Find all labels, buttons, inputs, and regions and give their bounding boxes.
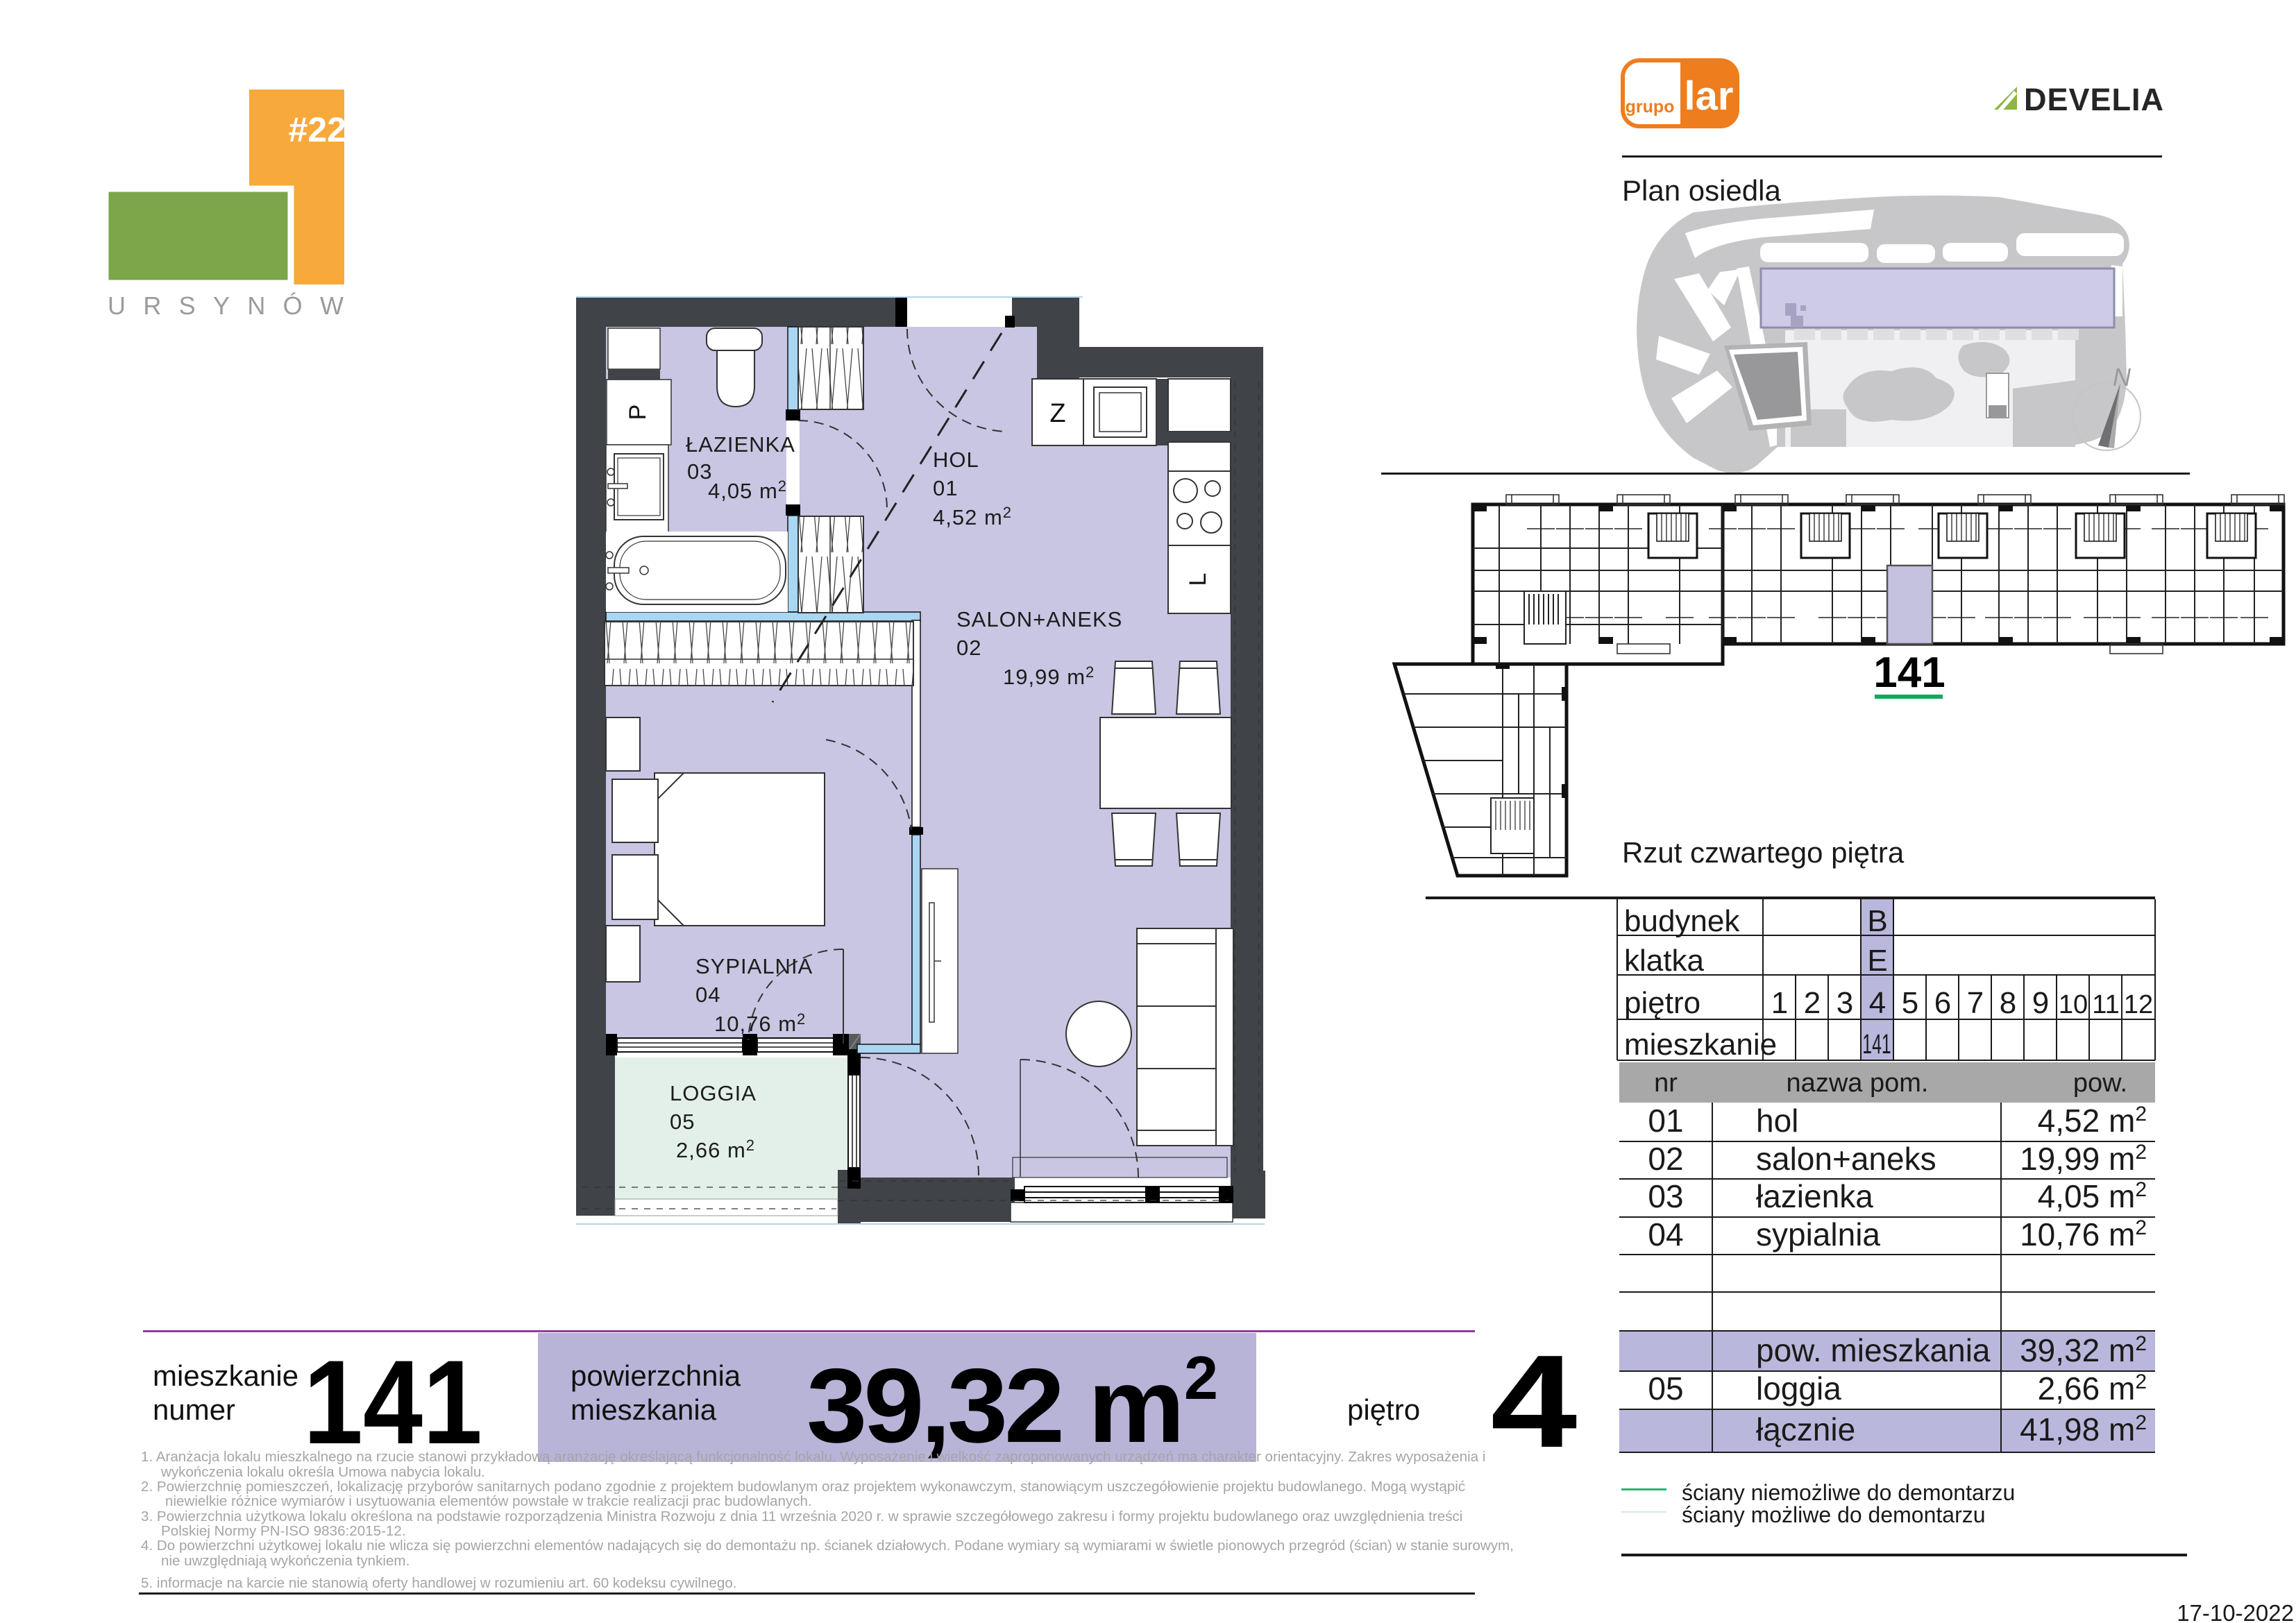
svg-text:budynek: budynek <box>1624 904 1740 938</box>
svg-text:19,99 m2: 19,99 m2 <box>2020 1141 2147 1177</box>
svg-text:łazienka: łazienka <box>1756 1178 1873 1214</box>
svg-text:SYPIALNIA: SYPIALNIA <box>695 954 813 978</box>
svg-text:2: 2 <box>1184 1343 1218 1412</box>
svg-text:3. Powierzchnia użytkowa lokal: 3. Powierzchnia użytkowa lokalu określon… <box>141 1509 1462 1524</box>
svg-text:141: 141 <box>1873 649 1945 697</box>
svg-text:4,05 m2: 4,05 m2 <box>2038 1178 2147 1214</box>
svg-text:6: 6 <box>1934 986 1951 1020</box>
svg-text:powierzchnia: powierzchnia <box>571 1359 741 1392</box>
svg-text:pow. mieszkania: pow. mieszkania <box>1756 1332 1991 1368</box>
svg-text:ŁAZIENKA: ŁAZIENKA <box>686 432 795 457</box>
svg-text:klatka: klatka <box>1624 944 1704 978</box>
svg-text:2. Powierzchnię pomieszczeń, l: 2. Powierzchnię pomieszczeń, lokalizację… <box>141 1479 1465 1495</box>
svg-text:11: 11 <box>2092 990 2119 1019</box>
svg-text:ściany niemożliwe do demontarz: ściany niemożliwe do demontarzu <box>1682 1480 2015 1505</box>
svg-text:mieszkania: mieszkania <box>571 1393 717 1426</box>
svg-text:nie uwzględniają wykończenia t: nie uwzględniają wykończenia tynkiem. <box>161 1553 410 1569</box>
svg-text:łącznie: łącznie <box>1756 1411 1855 1447</box>
svg-text:10: 10 <box>2059 990 2088 1019</box>
svg-text:05: 05 <box>670 1110 695 1134</box>
svg-text:03: 03 <box>1648 1178 1683 1214</box>
svg-text:piętro: piętro <box>1624 986 1700 1020</box>
svg-text:nazwa pom.: nazwa pom. <box>1787 1069 1929 1098</box>
svg-text:141: 141 <box>1862 1029 1891 1060</box>
svg-text:4,05 m2: 4,05 m2 <box>708 477 787 503</box>
svg-text:pow.: pow. <box>2073 1069 2127 1098</box>
svg-text:P: P <box>625 405 651 420</box>
svg-text:sypialnia: sypialnia <box>1756 1216 1880 1252</box>
svg-text:HOL: HOL <box>933 448 979 472</box>
svg-text:5: 5 <box>1902 986 1918 1020</box>
svg-text:DEVELIA: DEVELIA <box>2024 82 2164 117</box>
svg-text:4: 4 <box>1869 986 1886 1020</box>
svg-text:2,66 m2: 2,66 m2 <box>2038 1370 2147 1407</box>
svg-text:9: 9 <box>2032 986 2049 1020</box>
svg-text:4: 4 <box>1491 1328 1578 1475</box>
svg-text:02: 02 <box>956 636 981 660</box>
svg-text:04: 04 <box>695 983 720 1007</box>
svg-text:39,32 m: 39,32 m <box>807 1347 1181 1465</box>
svg-text:8: 8 <box>2000 986 2016 1020</box>
svg-text:wykończenia lokalu określa Umo: wykończenia lokalu określa Umowa nabycia… <box>160 1464 485 1480</box>
svg-text:10,76 m2: 10,76 m2 <box>714 1010 806 1036</box>
svg-text:01: 01 <box>1648 1103 1683 1139</box>
svg-text:02: 02 <box>1648 1141 1683 1177</box>
svg-text:4,52 m2: 4,52 m2 <box>933 504 1012 529</box>
svg-text:39,32 m2: 39,32 m2 <box>2020 1332 2147 1368</box>
svg-text:LOGGIA: LOGGIA <box>670 1081 757 1105</box>
svg-text:Polskiej Normy PN-ISO 9836:201: Polskiej Normy PN-ISO 9836:2015-12. <box>161 1523 406 1539</box>
svg-text:05: 05 <box>1648 1370 1683 1407</box>
svg-text:Z: Z <box>1049 399 1065 428</box>
svg-text:mieszkanie: mieszkanie <box>1624 1028 1777 1062</box>
svg-text:ściany możliwe do demontarzu: ściany możliwe do demontarzu <box>1682 1502 1986 1527</box>
svg-text:piętro: piętro <box>1347 1393 1420 1426</box>
svg-text:SALON+ANEKS: SALON+ANEKS <box>956 607 1122 631</box>
svg-text:E: E <box>1867 944 1887 978</box>
svg-text:41,98 m2: 41,98 m2 <box>2020 1411 2147 1447</box>
svg-text:loggia: loggia <box>1756 1370 1841 1407</box>
svg-text:2,66 m2: 2,66 m2 <box>676 1137 755 1162</box>
svg-text:#22: #22 <box>289 110 346 149</box>
svg-text:numer: numer <box>153 1393 235 1426</box>
svg-text:4. Do powierzchni użytkowej lo: 4. Do powierzchni użytkowej lokalu nie w… <box>141 1538 1514 1554</box>
svg-text:04: 04 <box>1648 1216 1683 1252</box>
svg-text:salon+aneks: salon+aneks <box>1756 1141 1936 1177</box>
svg-text:19,99 m2: 19,99 m2 <box>1003 663 1095 689</box>
svg-text:niewielkie różnice wymiarów i: niewielkie różnice wymiarów i usytuowani… <box>165 1493 812 1509</box>
svg-text:hol: hol <box>1756 1103 1798 1139</box>
svg-text:5. informacje na karcie nie st: 5. informacje na karcie nie stanowią ofe… <box>141 1575 737 1591</box>
svg-text:1: 1 <box>1771 986 1788 1020</box>
svg-text:7: 7 <box>1967 986 1984 1020</box>
svg-text:Rzut czwartego piętra: Rzut czwartego piętra <box>1622 836 1905 869</box>
svg-text:mieszkanie: mieszkanie <box>153 1359 298 1392</box>
svg-text:4,52 m2: 4,52 m2 <box>2038 1103 2147 1139</box>
svg-text:N: N <box>2113 363 2132 391</box>
svg-text:grupo: grupo <box>1626 97 1675 117</box>
svg-text:2: 2 <box>1804 986 1821 1020</box>
svg-text:12: 12 <box>2124 990 2153 1019</box>
svg-text:B: B <box>1867 904 1887 938</box>
svg-text:lar: lar <box>1685 74 1734 119</box>
svg-text:10,76 m2: 10,76 m2 <box>2020 1216 2147 1252</box>
svg-text:17-10-2022: 17-10-2022 <box>2177 1600 2294 1623</box>
svg-text:3: 3 <box>1837 986 1853 1020</box>
svg-text:Plan osiedla: Plan osiedla <box>1622 174 1781 207</box>
svg-text:01: 01 <box>933 476 958 500</box>
svg-text:1. Aranżacja lokalu mieszkalne: 1. Aranżacja lokalu mieszkalnego na rzuc… <box>141 1449 1485 1465</box>
svg-text:nr: nr <box>1654 1069 1678 1098</box>
svg-text:L: L <box>1185 573 1211 586</box>
